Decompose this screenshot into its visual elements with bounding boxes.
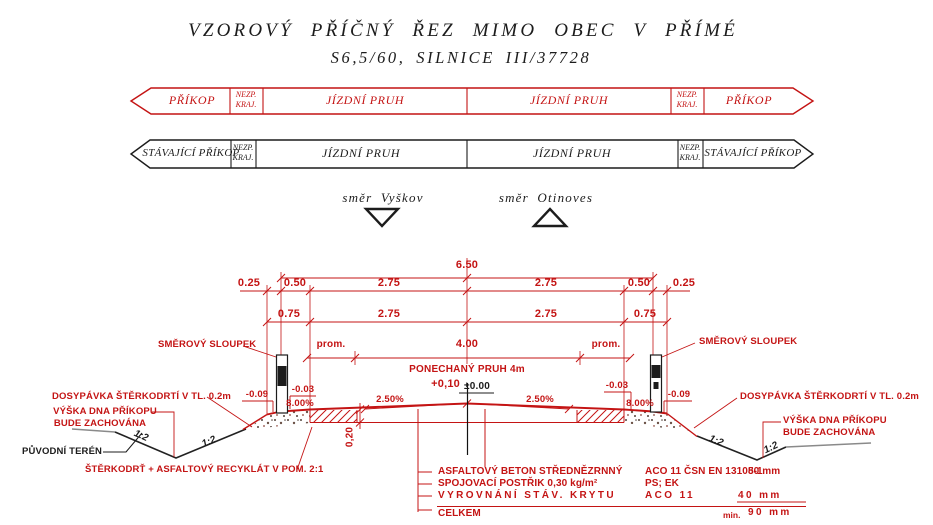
recycled-fill-left-area <box>310 410 357 423</box>
direction-label-left: směr Vyškov <box>342 190 423 206</box>
dim-prom-right: prom. <box>592 339 621 350</box>
layer-row-spec: ACO 11 <box>645 490 695 501</box>
terrain-line-right-gray <box>786 443 871 447</box>
slope-shoulder-left: 8.00% <box>286 398 314 409</box>
band-existing-ditch-right: STÁVAJÍCÍ PŘÍKOP <box>704 147 801 159</box>
recycled-fill-right-area <box>577 410 624 423</box>
ditch-level-label-right-1: VÝŠKA DNA PŘÍKOPU <box>783 415 887 426</box>
band-proposed-shoulder-right-top: NEZP. <box>677 90 698 99</box>
dim-050-left: 0.50 <box>284 277 306 289</box>
level-left-outer: -0.09 <box>246 389 268 400</box>
ditch-level-label-left-1: VÝŠKA DNA PŘÍKOPU <box>53 406 157 417</box>
dim-total-width: 6.50 <box>456 259 478 271</box>
band-existing-shoulder-left-top: NEZP. <box>233 143 254 152</box>
dim-025-right: 0.25 <box>673 277 695 289</box>
level-right-outer: -0.09 <box>668 389 690 400</box>
dim-075-right: 0.75 <box>634 308 656 320</box>
layer-row-name: VYROVNÁNÍ STÁV. KRYTU <box>438 490 616 501</box>
level-right-edge: -0.03 <box>606 380 628 391</box>
band-existing-shoulder-left-bottom: KRAJ. <box>233 153 254 162</box>
dim-275-right: 2.75 <box>535 277 557 289</box>
drawing-subtitle: S6,5/60, SILNICE III/37728 <box>331 48 592 68</box>
dim-050-right: 0.50 <box>628 277 650 289</box>
recycled-fill-label: ŠTĚRKODRŤ + ASFALTOVÝ RECYKLÁT V POM. 2:… <box>85 464 324 475</box>
direction-arrow-up-icon <box>534 209 566 226</box>
gravel-backfill-label-left: DOSYPÁVKA ŠTĚRKODRTÍ V TL. 0.2m <box>52 391 231 402</box>
layer-total-label: CELKEM <box>438 508 481 519</box>
dim-275b-right: 2.75 <box>535 308 557 320</box>
level-existing-center: ±0.00 <box>464 381 490 392</box>
ditch-level-label-right-2: BUDE ZACHOVÁNA <box>783 427 875 438</box>
band-proposed-shoulder-left-top: NEZP. <box>236 90 257 99</box>
dim-pavement-depth: 0,20 <box>345 427 356 447</box>
guide-post-label-right: SMĚROVÝ SLOUPEK <box>699 336 797 347</box>
dim-275b-left: 2.75 <box>378 308 400 320</box>
band-existing-shoulder-right-bottom: KRAJ. <box>680 153 701 162</box>
band-proposed-shoulder-left-bottom: KRAJ. <box>236 100 257 109</box>
drawing-title: VZOROVÝ PŘÍČNÝ ŘEZ MIMO OBEC V PŘÍMÉ <box>188 20 738 42</box>
band-existing-ditch-left: STÁVAJÍCÍ PŘÍKOP <box>142 147 239 159</box>
band-proposed-ditch-left: PŘÍKOP <box>169 93 215 108</box>
band-existing-lane-right: JÍZDNÍ PRUH <box>533 146 611 161</box>
band-proposed-lane-left: JÍZDNÍ PRUH <box>326 93 404 108</box>
dim-prom-left: prom. <box>317 339 346 350</box>
layer-row-thickness: 40 mm <box>738 490 782 501</box>
band-proposed-ditch-right: PŘÍKOP <box>726 93 772 108</box>
slope-cross-left: 2.50% <box>376 394 404 405</box>
direction-arrow-down-icon <box>366 209 398 226</box>
slope-shoulder-right: 8.00% <box>626 398 654 409</box>
layer-row-spec: ACO 11 ČSN EN 13108-1 <box>645 466 763 477</box>
drawing-sheet: VZOROVÝ PŘÍČNÝ ŘEZ MIMO OBEC V PŘÍMÉ S6,… <box>0 0 933 525</box>
level-new-center: +0,10 <box>408 378 460 390</box>
terrain-line-left-gray <box>72 429 115 432</box>
guide-post-label-left: SMĚROVÝ SLOUPEK <box>158 339 256 350</box>
dim-075-left: 0.75 <box>278 308 300 320</box>
layer-row-name: ASFALTOVÝ BETON STŘEDNĚZRNNÝ <box>438 466 622 477</box>
layer-total-value: 90 mm <box>748 507 792 518</box>
dim-025-left: 0.25 <box>238 277 260 289</box>
original-terrain-label: PŮVODNÍ TERÉN <box>22 446 102 457</box>
slope-cross-right: 2.50% <box>526 394 554 405</box>
band-existing-lane-left: JÍZDNÍ PRUH <box>322 146 400 161</box>
ditch-level-label-left-2: BUDE ZACHOVÁNA <box>54 418 146 429</box>
gravel-backfill-right-area <box>624 410 690 431</box>
gravel-backfill-label-right: DOSYPÁVKA ŠTĚRKODRTÍ V TL. 0.2m <box>740 391 919 402</box>
level-left-edge: -0.03 <box>292 384 314 395</box>
layer-row-thickness: 50 mm <box>748 466 780 477</box>
layer-row-spec: PS; EK <box>645 478 679 489</box>
layer-row-name: SPOJOVACÍ POSTŘIK 0,30 kg/m² <box>438 478 597 489</box>
band-proposed-lane-right: JÍZDNÍ PRUH <box>530 93 608 108</box>
band-existing-shoulder-right-top: NEZP. <box>680 143 701 152</box>
dim-275-left: 2.75 <box>378 277 400 289</box>
band-proposed-shoulder-right-bottom: KRAJ. <box>677 100 698 109</box>
dim-400: 4.00 <box>456 338 478 350</box>
direction-label-right: směr Otinoves <box>499 190 593 206</box>
layer-total-prefix: min. <box>723 510 740 520</box>
kept-lane-label: PONECHANÝ PRUH 4m <box>409 364 525 375</box>
lane-band-proposed-outline <box>131 88 813 114</box>
